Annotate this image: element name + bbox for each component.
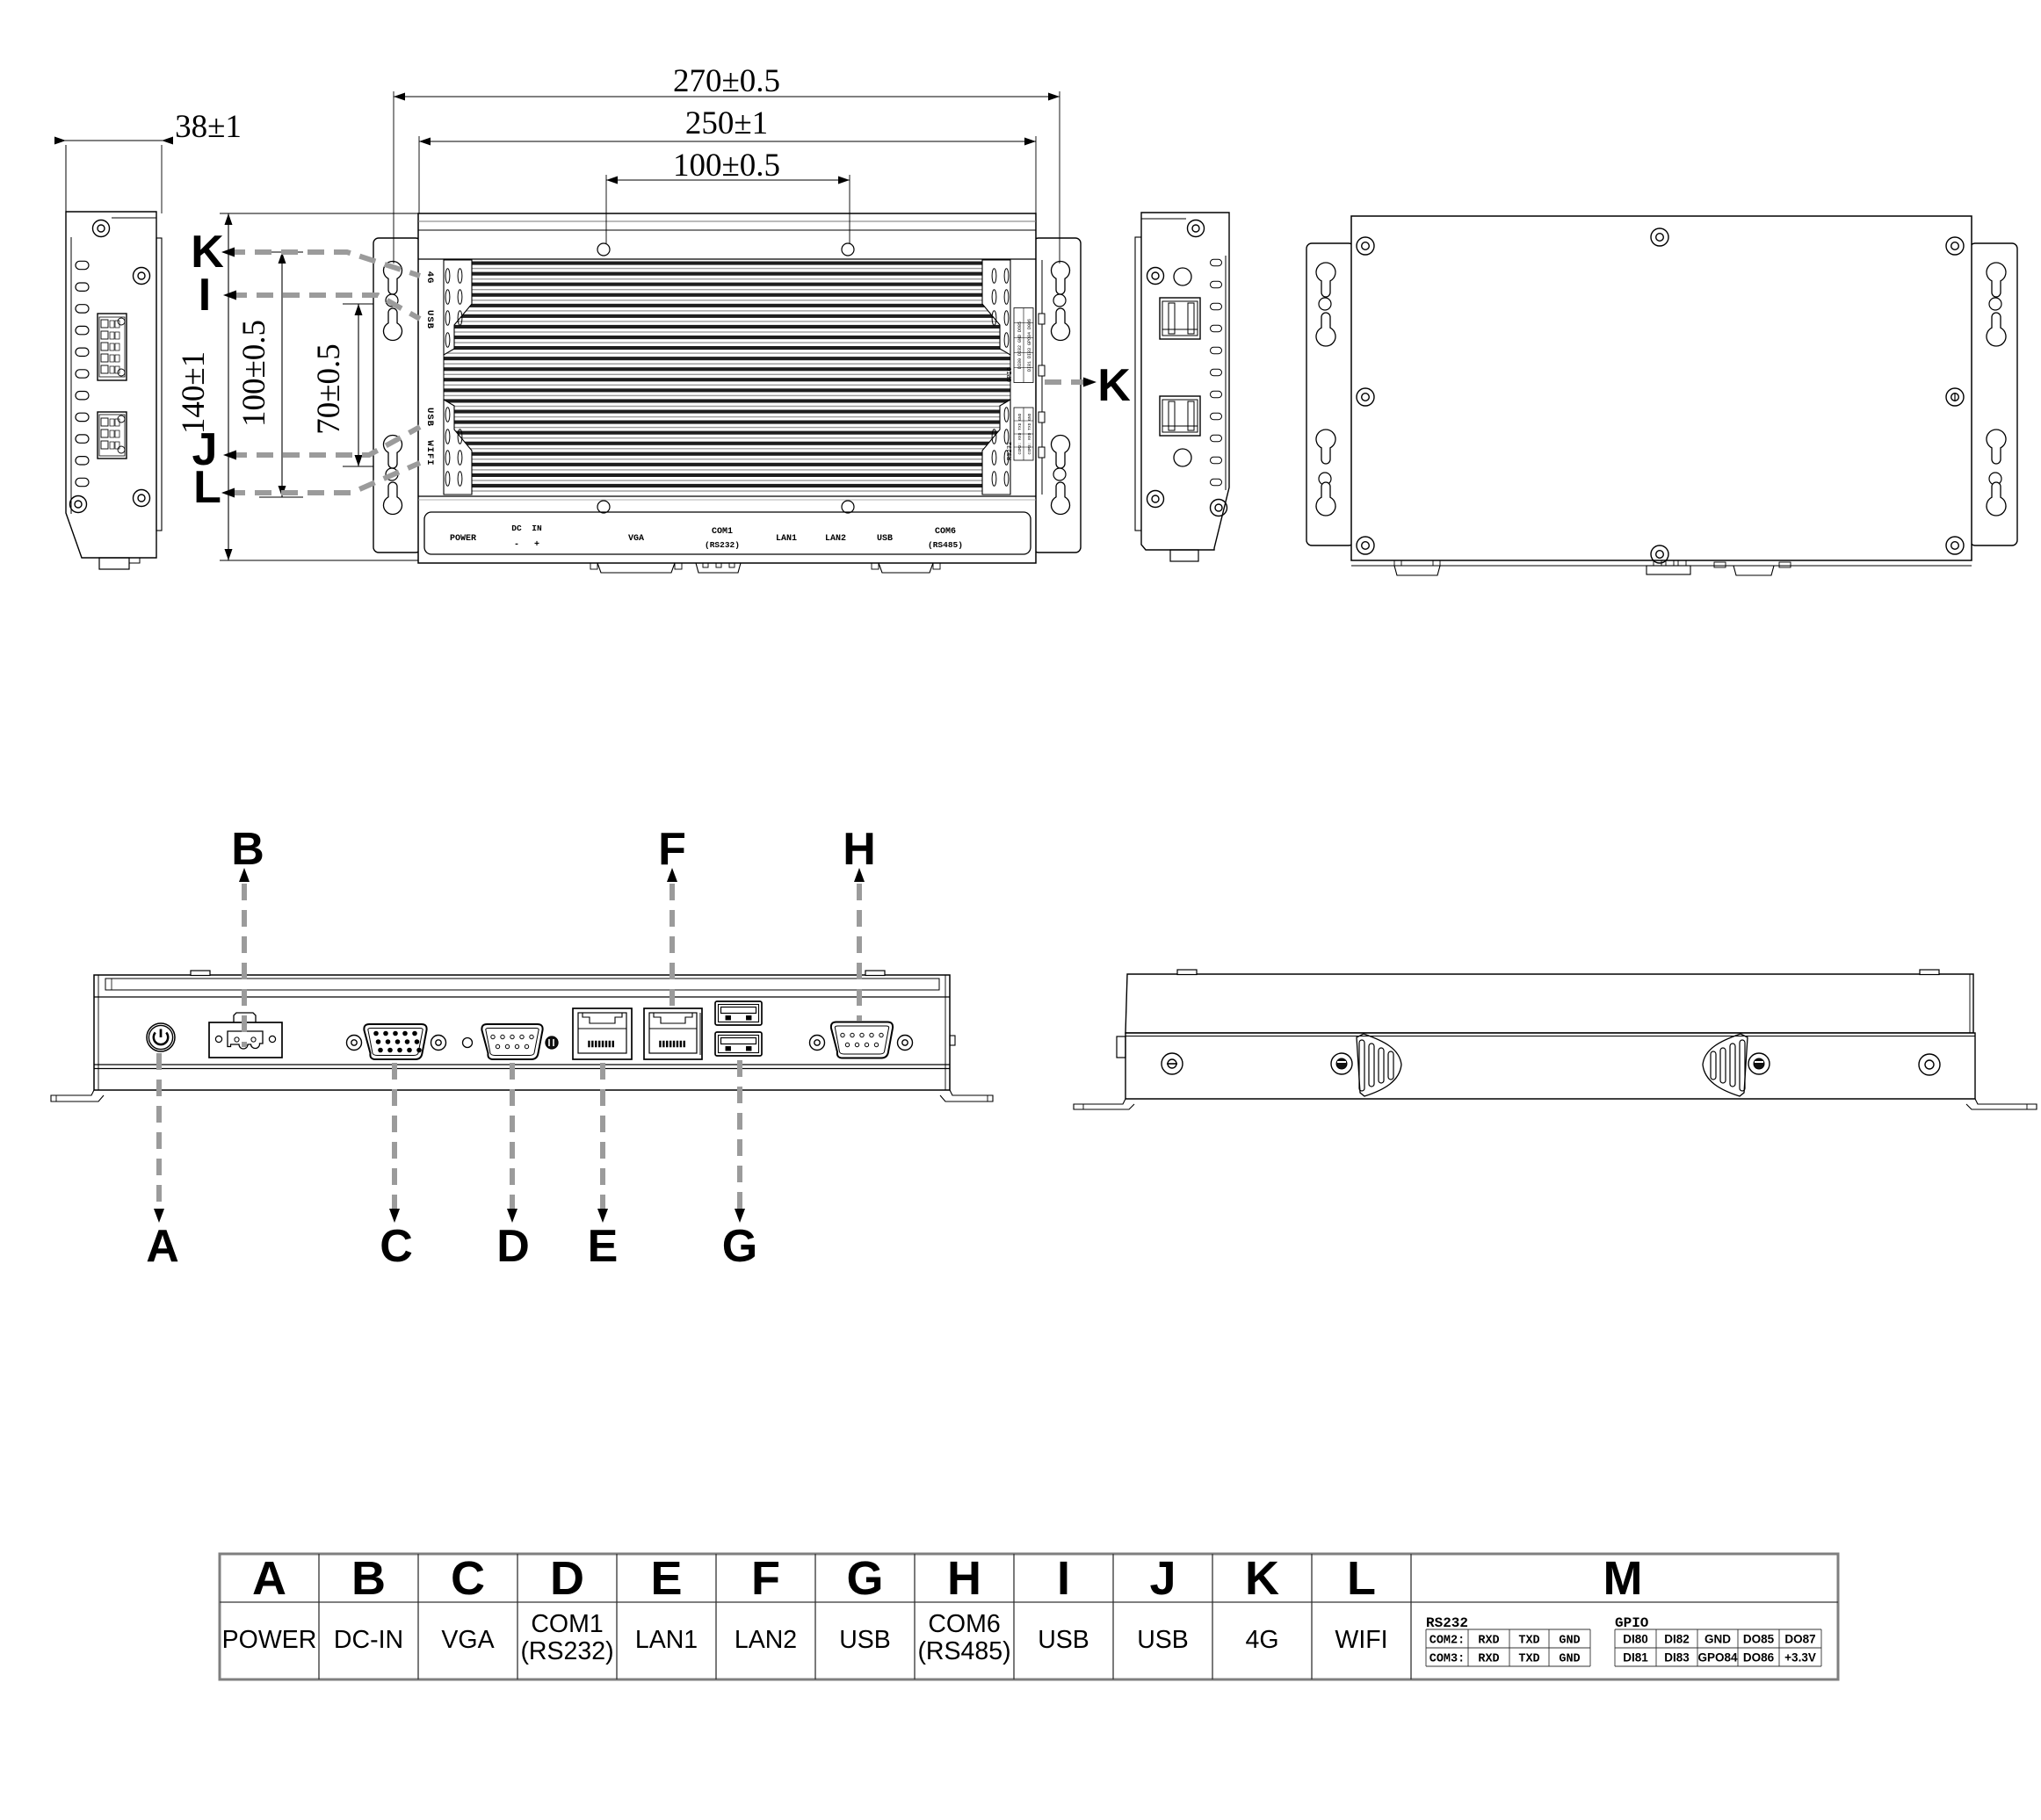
svg-text:K: K	[1097, 360, 1131, 411]
svg-text:COM2:: COM2:	[1429, 1635, 1466, 1648]
svg-text:B: B	[231, 824, 264, 875]
svg-text:M: M	[1603, 1552, 1643, 1605]
svg-text:RXD: RXD	[1478, 1635, 1499, 1648]
svg-text:COM1: COM1	[531, 1610, 603, 1638]
svg-text:DI82: DI82	[1664, 1633, 1690, 1646]
svg-text:IN: IN	[532, 524, 542, 533]
svg-text:USB: USB	[839, 1626, 891, 1654]
svg-text:L: L	[193, 462, 221, 513]
svg-text:DI81 DI83 GPO84 D086: DI81 DI83 GPO84 D086	[1027, 319, 1032, 372]
svg-text:I: I	[1057, 1552, 1070, 1605]
svg-text:+: +	[534, 540, 539, 550]
svg-text:COM6: COM6	[928, 1610, 1000, 1638]
svg-text:USB: USB	[424, 408, 435, 427]
svg-text:VGA: VGA	[628, 534, 644, 544]
svg-text:WIFI: WIFI	[424, 440, 435, 466]
svg-text:L: L	[1347, 1552, 1376, 1605]
svg-text:LAN1: LAN1	[635, 1626, 698, 1654]
svg-text:USB: USB	[1137, 1626, 1189, 1654]
svg-text:DI80 DI82 GND DO85: DI80 DI82 GND DO85	[1017, 321, 1023, 369]
svg-text:GND: GND	[1704, 1633, 1731, 1646]
svg-text:DI81: DI81	[1623, 1651, 1648, 1665]
svg-text:E: E	[650, 1552, 682, 1605]
svg-text:4G: 4G	[1245, 1626, 1278, 1654]
svg-text:DC: DC	[511, 524, 522, 533]
svg-text:K: K	[1245, 1552, 1279, 1605]
svg-text:-: -	[514, 540, 519, 550]
svg-text:(RS232): (RS232)	[520, 1637, 613, 1665]
svg-text:POWER: POWER	[222, 1626, 317, 1654]
svg-text:A: A	[146, 1221, 179, 1272]
svg-text:COM3: RXD TXD GND: COM3: RXD TXD GND	[1027, 413, 1032, 454]
svg-text:H: H	[947, 1552, 981, 1605]
svg-text:DI80: DI80	[1623, 1633, 1648, 1646]
svg-text:100±0.5: 100±0.5	[673, 148, 780, 184]
svg-text:WIFI: WIFI	[1335, 1626, 1387, 1654]
svg-text:LAN2: LAN2	[825, 534, 846, 544]
svg-text:COM6: COM6	[935, 527, 956, 537]
svg-text:LAN1: LAN1	[776, 534, 797, 544]
svg-text:COM1: COM1	[712, 527, 733, 537]
svg-text:270±0.5: 270±0.5	[673, 63, 780, 99]
svg-text:C: C	[380, 1221, 413, 1272]
svg-text:TXD: TXD	[1518, 1635, 1539, 1648]
svg-text:D: D	[550, 1552, 584, 1605]
svg-text:+3.3V: +3.3V	[1784, 1651, 1816, 1665]
svg-text:RS232: RS232	[1426, 1615, 1468, 1631]
svg-text:F: F	[658, 824, 686, 875]
svg-text:DO86: DO86	[1743, 1651, 1775, 1665]
svg-text:LAN2: LAN2	[735, 1626, 797, 1654]
svg-text:COM3:: COM3:	[1429, 1653, 1466, 1666]
svg-text:GPIO: GPIO	[1615, 1615, 1649, 1631]
svg-text:F: F	[751, 1552, 780, 1605]
svg-text:GPO84: GPO84	[1697, 1651, 1738, 1665]
svg-text:POWER: POWER	[450, 534, 476, 544]
svg-text:GND: GND	[1559, 1635, 1580, 1648]
svg-text:E: E	[588, 1221, 619, 1272]
svg-text:140±1: 140±1	[176, 351, 212, 434]
svg-text:RS232: RS232	[1007, 442, 1014, 460]
svg-text:C: C	[451, 1552, 485, 1605]
svg-text:H: H	[843, 824, 876, 875]
svg-text:(RS232): (RS232)	[705, 540, 740, 550]
svg-text:DC-IN: DC-IN	[334, 1626, 403, 1654]
svg-text:COM2: RXD TXD GND: COM2: RXD TXD GND	[1017, 413, 1023, 454]
svg-text:A: A	[252, 1552, 286, 1605]
svg-text:(RS485): (RS485)	[928, 540, 963, 550]
svg-text:B: B	[351, 1552, 386, 1605]
svg-text:DI83: DI83	[1664, 1651, 1690, 1665]
svg-text:70±0.5: 70±0.5	[311, 343, 347, 435]
svg-text:250±1: 250±1	[685, 105, 768, 141]
svg-text:GND: GND	[1559, 1653, 1580, 1666]
svg-text:DO85: DO85	[1743, 1633, 1775, 1646]
svg-text:USB: USB	[1038, 1626, 1089, 1654]
svg-text:38±1: 38±1	[175, 109, 242, 145]
svg-text:4G: 4G	[424, 271, 435, 285]
svg-text:I: I	[199, 270, 211, 321]
svg-text:(RS485): (RS485)	[917, 1637, 1010, 1665]
svg-text:D: D	[496, 1221, 530, 1272]
svg-text:VGA: VGA	[441, 1626, 494, 1654]
svg-text:TXD: TXD	[1518, 1653, 1539, 1666]
svg-text:USB: USB	[877, 534, 893, 544]
svg-text:G: G	[722, 1221, 757, 1272]
svg-text:USB: USB	[424, 310, 435, 329]
svg-text:100±0.5: 100±0.5	[236, 320, 272, 427]
svg-text:DO87: DO87	[1784, 1633, 1815, 1646]
svg-text:RXD: RXD	[1478, 1653, 1499, 1666]
svg-text:J: J	[1149, 1552, 1176, 1605]
svg-text:GPIO: GPIO	[1007, 367, 1014, 382]
svg-text:G: G	[846, 1552, 883, 1605]
